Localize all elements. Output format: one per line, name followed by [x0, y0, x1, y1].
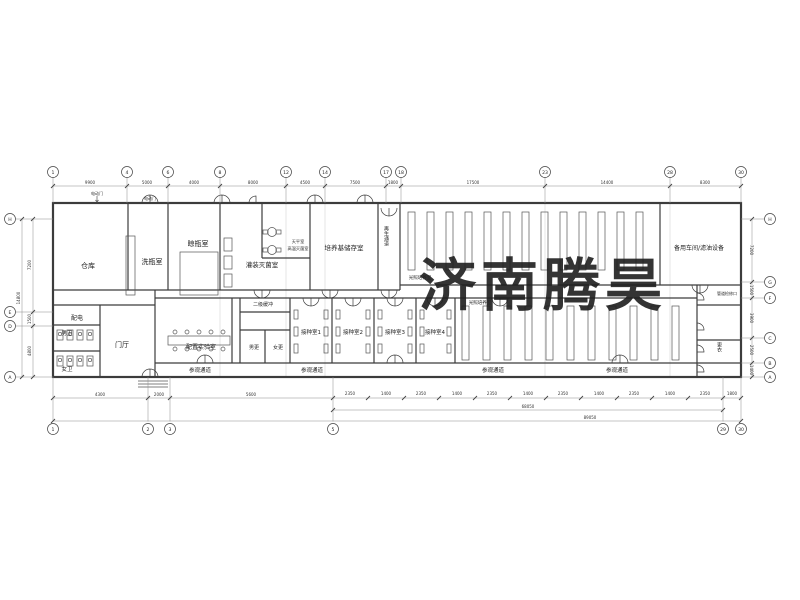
dim-text: 9900	[85, 180, 96, 185]
svg-text:12: 12	[283, 170, 289, 176]
drawing-page: 仓库 洗瓶室 晾瓶室 灌装灭菌室 培养基储存室 备用车间/滤油设备 配电 男卫 …	[0, 0, 800, 600]
svg-text:2350: 2350	[629, 391, 640, 396]
svg-text:7200: 7200	[749, 245, 754, 256]
svg-text:B: B	[768, 361, 771, 367]
svg-text:1400: 1400	[523, 391, 534, 396]
svg-text:17500: 17500	[467, 180, 480, 185]
grid-right: H G F C B A 7200 1500 3900 2500 1400	[741, 214, 776, 383]
svg-text:F: F	[769, 296, 772, 302]
svg-text:H: H	[8, 217, 11, 223]
svg-text:8000: 8000	[248, 180, 259, 185]
svg-text:2350: 2350	[416, 391, 427, 396]
svg-text:H: H	[768, 217, 771, 223]
room-label-inoc1: 接种室1	[301, 328, 321, 336]
svg-text:2350: 2350	[558, 391, 569, 396]
entrance-steps	[138, 381, 168, 387]
svg-text:1500: 1500	[27, 313, 32, 324]
label-visit-corridor-4: 参观通道	[606, 366, 629, 374]
svg-text:D: D	[8, 324, 12, 330]
svg-text:23: 23	[542, 170, 548, 176]
floor-plan-canvas: 仓库 洗瓶室 晾瓶室 灌装灭菌室 培养基储存室 备用车间/滤油设备 配电 男卫 …	[0, 0, 800, 600]
label-changing: 更衣	[716, 342, 722, 353]
svg-text:C: C	[768, 336, 771, 342]
room-label-bottle-wash: 洗瓶室	[142, 257, 163, 266]
room-label-women-wc: 女卫	[61, 365, 73, 373]
svg-text:2350: 2350	[345, 391, 356, 396]
room-label-inoc3: 接种室3	[385, 328, 406, 336]
svg-text:30: 30	[738, 170, 744, 176]
autoclave-icon	[263, 228, 281, 255]
grid-bottom: 4300 2000 5600 2350 1400 2350 1400 2350 …	[48, 377, 747, 435]
svg-text:14: 14	[322, 170, 328, 176]
svg-text:3900: 3900	[749, 313, 754, 324]
room-label-men-wc: 男卫	[61, 330, 73, 337]
room-label-medium-storage: 培养基储存室	[325, 243, 365, 252]
svg-text:E: E	[9, 310, 12, 316]
svg-text:28: 28	[667, 170, 673, 176]
svg-text:2500: 2500	[749, 345, 754, 356]
svg-text:G: G	[768, 280, 772, 286]
watermark-text: 济南腾昊	[419, 253, 667, 319]
svg-text:7500: 7500	[350, 180, 361, 185]
svg-text:68050: 68050	[522, 404, 535, 409]
label-visit-corridor-3: 参观通道	[482, 366, 505, 374]
room-label-spare-workshop: 备用车间/滤油设备	[674, 244, 724, 252]
svg-text:5600: 5600	[246, 392, 257, 397]
door-leader-arrow	[96, 196, 99, 202]
svg-text:6: 6	[167, 170, 170, 176]
svg-text:4000: 4000	[189, 180, 200, 185]
label-balance-room: 天平室	[292, 238, 305, 245]
room-label-men-change: 男更	[249, 345, 259, 351]
room-label-women-change: 女更	[273, 344, 283, 351]
svg-text:89050: 89050	[584, 415, 597, 420]
svg-text:4800: 4800	[27, 345, 32, 356]
label-electric-door-1: 电动门	[91, 190, 103, 196]
label-regen-corridor: 再生通道	[383, 226, 389, 247]
svg-text:5: 5	[332, 427, 335, 433]
svg-text:29: 29	[720, 427, 726, 433]
room-label-lobby: 门厅	[115, 340, 129, 349]
sterilizer-cabinets	[224, 238, 232, 287]
svg-text:18: 18	[398, 170, 404, 176]
svg-text:8300: 8300	[700, 180, 711, 185]
bottle-wash-rack	[126, 236, 135, 295]
svg-text:5000: 5000	[142, 180, 153, 185]
svg-text:14400: 14400	[601, 180, 614, 185]
room-label-bottle-dry: 晾瓶室	[188, 239, 209, 248]
svg-text:3: 3	[169, 427, 172, 433]
room-label-power: 配电	[71, 314, 83, 322]
svg-text:4300: 4300	[95, 392, 106, 397]
svg-text:17: 17	[383, 170, 389, 176]
svg-text:4500: 4500	[300, 180, 311, 185]
label-visit-corridor-1: 参观通道	[189, 366, 212, 374]
room-label-inoc4: 接种室4	[425, 328, 446, 336]
label-buffer2: 二级缓冲	[253, 301, 273, 308]
drying-area-hatch	[180, 252, 218, 295]
svg-text:14800: 14800	[16, 291, 21, 304]
svg-text:4: 4	[126, 170, 129, 176]
svg-text:30: 30	[738, 427, 744, 433]
label-autoclave-room: 高温灭菌室	[288, 245, 309, 252]
svg-text:1: 1	[52, 427, 55, 433]
svg-text:1400: 1400	[594, 391, 605, 396]
svg-text:1500: 1500	[749, 285, 754, 296]
svg-text:1800: 1800	[388, 180, 399, 185]
grid-bubble-label: 1	[52, 170, 55, 176]
svg-text:2350: 2350	[487, 391, 498, 396]
svg-text:1400: 1400	[665, 391, 676, 396]
label-electric-door-2: 电动门	[144, 195, 156, 201]
svg-text:7200: 7200	[27, 259, 32, 270]
room-label-fill-sterilize: 灌装灭菌室	[246, 260, 279, 269]
room-label-prep-lab: 配置实验室	[186, 343, 216, 351]
svg-text:1400: 1400	[452, 391, 463, 396]
svg-text:2: 2	[147, 427, 150, 433]
room-label-warehouse: 仓库	[81, 261, 95, 270]
svg-text:8: 8	[219, 170, 222, 176]
svg-text:1800: 1800	[727, 391, 738, 396]
room-label-inoc2: 接种室2	[343, 328, 363, 336]
svg-text:2000: 2000	[154, 392, 165, 397]
svg-text:1400: 1400	[749, 365, 754, 376]
svg-text:2350: 2350	[700, 391, 711, 396]
label-visit-corridor-2: 参观通道	[301, 366, 324, 374]
label-pipe-access: 管道检修口	[717, 290, 737, 296]
svg-text:1400: 1400	[381, 391, 392, 396]
grid-left: H E D A 7200 1500 4800 14800	[5, 214, 54, 383]
